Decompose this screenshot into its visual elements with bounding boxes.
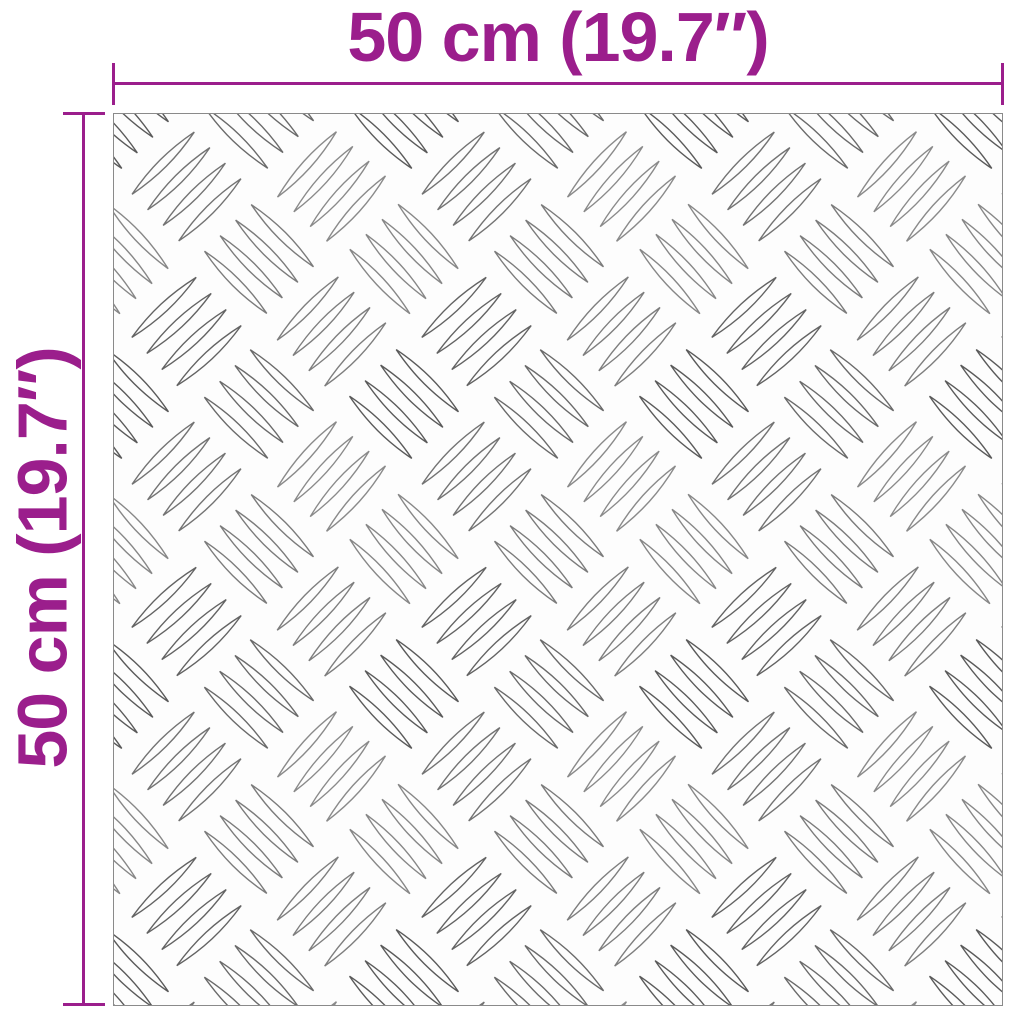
checker-plate-texture — [114, 114, 1002, 1005]
width-dimension-tick-right — [1001, 63, 1004, 105]
height-dimension-tick-top — [63, 112, 105, 115]
height-dimension-tick-bottom — [63, 1003, 105, 1006]
plate-tread-pattern — [114, 114, 1002, 1005]
height-dimension-label: 50 cm (19.7″) — [7, 113, 77, 1004]
height-dimension-line — [82, 113, 85, 1004]
width-dimension-tick-left — [112, 63, 115, 105]
checker-plate — [113, 113, 1003, 1006]
width-dimension-line — [113, 82, 1003, 85]
width-dimension-label: 50 cm (19.7″) — [113, 0, 1003, 74]
dimension-diagram: 50 cm (19.7″) 50 cm (19.7″) — [0, 0, 1024, 1024]
